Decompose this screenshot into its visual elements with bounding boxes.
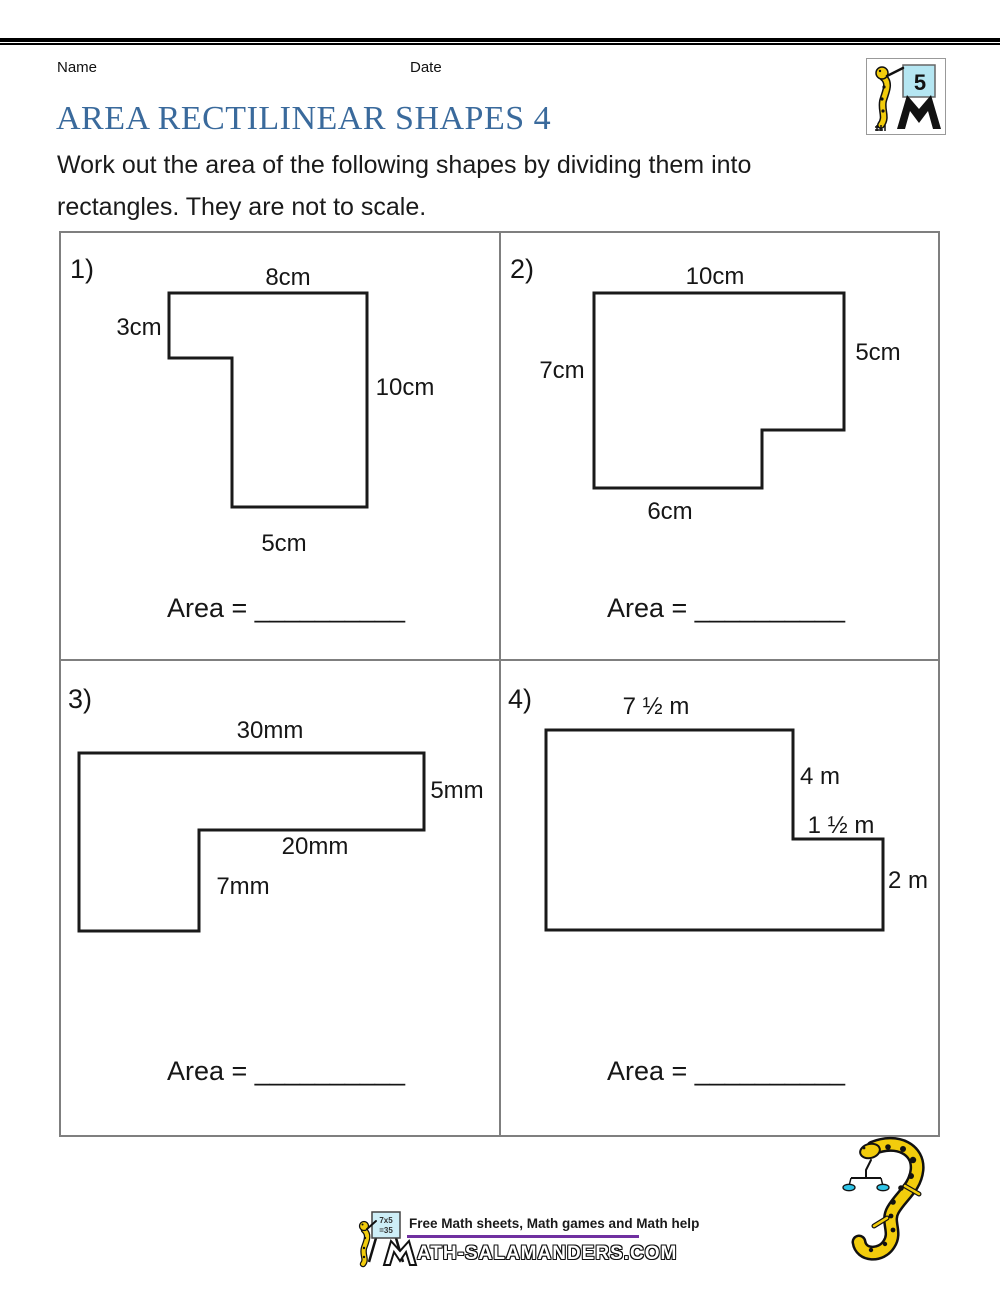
board-text-2: =35 xyxy=(379,1226,393,1235)
dim-label-right: 5mm xyxy=(430,777,483,805)
dim-label-top: 30mm xyxy=(237,717,304,745)
wordmark-m-icon xyxy=(383,1239,417,1266)
dim-label-step: 20mm xyxy=(282,833,349,861)
board-text-1: 7x5 xyxy=(379,1216,393,1225)
salamander-body xyxy=(859,1142,919,1253)
problem-3-number: 3) xyxy=(68,684,92,715)
area-answer-blank: Area = __________ xyxy=(167,1056,405,1087)
salamander-with-scale-icon xyxy=(843,1136,943,1264)
dim-label-inner: 7mm xyxy=(216,873,269,901)
area-answer-blank: Area = __________ xyxy=(607,593,845,624)
problem-3-shape xyxy=(67,741,436,943)
page-title: AREA RECTILINEAR SHAPES 4 xyxy=(56,100,551,138)
problem-1-number: 1) xyxy=(70,254,94,285)
footer-accent-rule xyxy=(407,1235,639,1238)
grid-vertical-divider xyxy=(499,233,501,1135)
dim-label-right: 5cm xyxy=(855,339,900,367)
m-monogram-icon xyxy=(897,95,941,129)
dim-label-top: 10cm xyxy=(686,263,745,291)
page-top-rule xyxy=(0,38,1000,45)
footer-tagline: Free Math sheets, Math games and Math he… xyxy=(409,1216,699,1231)
instructions-line2: rectangles. They are not to scale. xyxy=(57,193,426,222)
problem-4-number: 4) xyxy=(508,684,532,715)
dim-label-left: 7cm xyxy=(539,357,584,385)
area-answer-blank: Area = __________ xyxy=(167,593,405,624)
problem-1-shape xyxy=(157,281,379,519)
shape-1-outline xyxy=(169,293,367,507)
grid-horizontal-divider xyxy=(61,659,938,661)
grade-number: 5 xyxy=(914,70,926,95)
worksheet-page: Name Date 5 AREA RECTILINEAR SHAPES 4 Wo… xyxy=(0,0,1000,1294)
dim-label-left: 3cm xyxy=(116,314,161,342)
site-logo-graphic: 5 xyxy=(867,59,945,134)
shape-3-outline xyxy=(79,753,424,931)
dim-label-bottom: 6cm xyxy=(647,498,692,526)
dim-label-lower-right: 2 m xyxy=(888,867,928,895)
salamander-icon xyxy=(875,67,903,131)
footer-wordmark: ATH-SALAMANDERS.COM xyxy=(417,1243,677,1265)
site-logo: 5 xyxy=(866,58,946,135)
dim-label-step: 1 ½ m xyxy=(808,812,875,840)
date-field-label: Date xyxy=(410,59,442,76)
dim-label-top: 8cm xyxy=(265,264,310,292)
problem-2-shape xyxy=(582,281,856,500)
dim-label-right: 10cm xyxy=(376,374,435,402)
dim-label-top: 7 ½ m xyxy=(623,693,690,721)
problem-2-number: 2) xyxy=(510,254,534,285)
dim-label-upper-right: 4 m xyxy=(800,763,840,791)
area-answer-blank: Area = __________ xyxy=(607,1056,845,1087)
dim-label-bottom: 5cm xyxy=(261,530,306,558)
name-field-label: Name xyxy=(57,59,97,76)
balance-scale-icon xyxy=(843,1160,889,1191)
instructions-line1: Work out the area of the following shape… xyxy=(57,151,751,180)
shape-2-outline xyxy=(594,293,844,488)
